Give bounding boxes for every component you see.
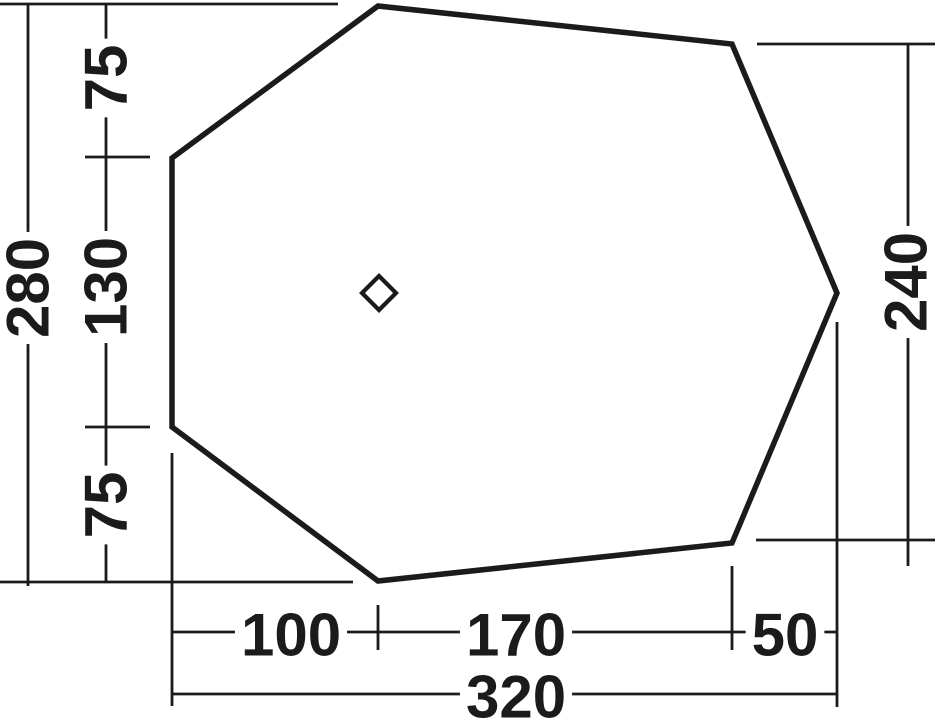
dim-label-240-text: 240 [873,232,936,332]
dim-label-75-bottom-text: 75 [73,472,140,539]
dim-label-75-top: 75 [73,39,140,118]
dim-label-240: 240 [873,226,936,338]
dim-label-100-text: 100 [241,602,341,669]
dim-label-50: 50 [746,602,825,669]
dim-label-50-text: 50 [752,602,819,669]
dim-label-75-top-text: 75 [73,45,140,112]
dim-label-320: 320 [460,664,572,720]
footprint-outline [172,6,837,581]
dim-label-280-text: 280 [0,238,62,338]
technical-drawing: 751307528024010017050320 [0,0,936,720]
dim-label-320-text: 320 [466,664,566,720]
dim-label-170: 170 [460,602,572,669]
dim-label-170-text: 170 [466,602,566,669]
dim-label-100: 100 [235,602,347,669]
outline-layer [172,6,837,581]
dimension-labels-layer: 751307528024010017050320 [0,39,936,720]
center-diamond [362,276,396,310]
dim-label-130-text: 130 [73,237,140,337]
dim-label-75-bottom: 75 [73,466,140,545]
dim-label-280: 280 [0,232,62,344]
dim-label-130: 130 [73,231,140,343]
